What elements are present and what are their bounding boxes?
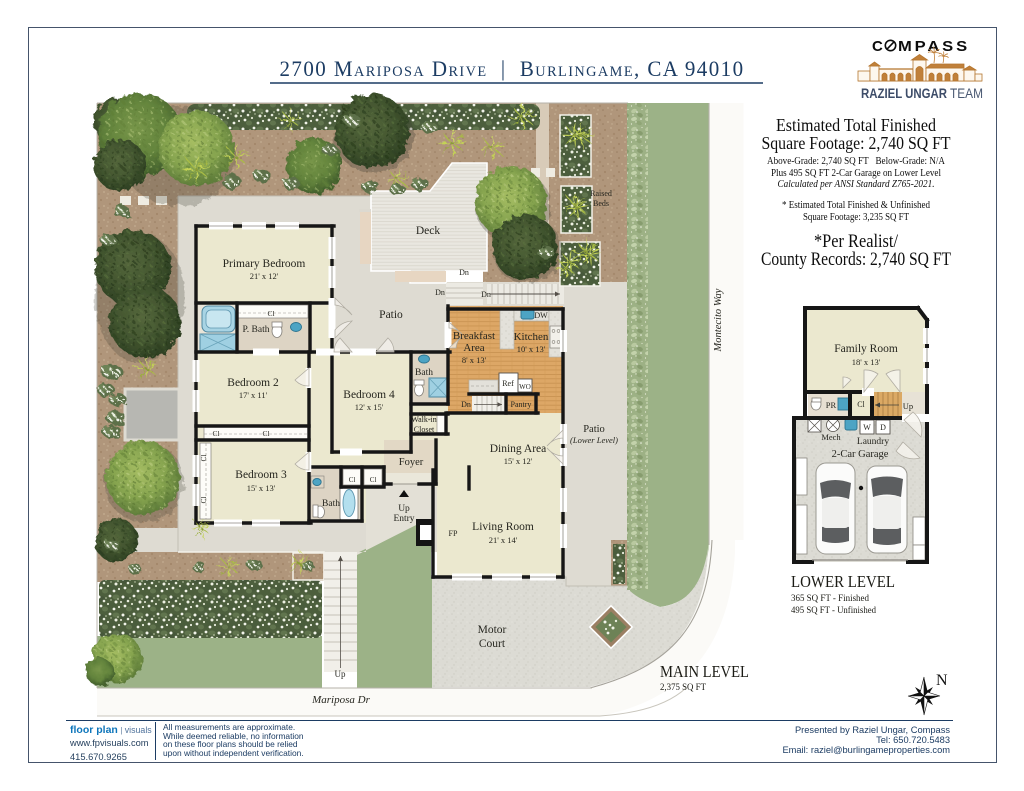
svg-text:Walk-in: Walk-in: [411, 415, 437, 424]
svg-text:Bath: Bath: [322, 499, 340, 509]
svg-text:DW: DW: [534, 311, 548, 320]
svg-text:12' x 15': 12' x 15': [355, 402, 384, 412]
svg-text:21' x 14': 21' x 14': [489, 535, 518, 545]
svg-text:Beds: Beds: [593, 199, 609, 208]
svg-text:2,375 SQ FT: 2,375 SQ FT: [660, 683, 706, 693]
svg-text:Living Room: Living Room: [472, 521, 534, 533]
svg-text:Cl: Cl: [262, 429, 269, 438]
svg-text:Cl: Cl: [267, 309, 274, 318]
svg-text:Dn: Dn: [459, 268, 469, 277]
svg-text:Cl: Cl: [370, 476, 377, 484]
svg-text:Dn: Dn: [435, 288, 445, 297]
svg-text:15' x 12': 15' x 12': [504, 456, 533, 466]
svg-text:Up: Up: [335, 669, 346, 679]
svg-text:Motor: Motor: [478, 624, 507, 636]
svg-text:Kitchen: Kitchen: [514, 331, 549, 343]
svg-text:15' x 13': 15' x 13': [247, 483, 276, 493]
svg-text:D: D: [880, 423, 886, 432]
svg-text:Cl: Cl: [200, 455, 208, 462]
svg-text:P. Bath: P. Bath: [243, 325, 270, 335]
svg-text:18' x 13': 18' x 13': [852, 357, 881, 367]
svg-text:WO: WO: [519, 383, 531, 391]
svg-text:10' x 13': 10' x 13': [517, 344, 546, 354]
svg-text:(Lower Level): (Lower Level): [570, 435, 618, 445]
svg-text:Cl: Cl: [349, 476, 356, 484]
svg-text:Family Room: Family Room: [834, 343, 898, 355]
svg-text:17' x 11': 17' x 11': [239, 390, 268, 400]
svg-text:Closet: Closet: [414, 425, 435, 434]
svg-text:Raised: Raised: [590, 189, 612, 198]
svg-text:Patio: Patio: [379, 309, 403, 321]
svg-text:Up: Up: [398, 504, 410, 514]
svg-text:Dining Area: Dining Area: [490, 443, 547, 455]
svg-text:Dn: Dn: [461, 400, 471, 409]
svg-text:2-Car Garage: 2-Car Garage: [832, 449, 889, 460]
svg-text:Deck: Deck: [416, 225, 441, 237]
svg-text:Patio: Patio: [583, 424, 605, 435]
svg-text:Entry: Entry: [393, 514, 414, 524]
svg-text:Cl: Cl: [212, 429, 219, 438]
svg-text:Up: Up: [903, 401, 913, 411]
svg-text:495 SQ FT - Unfinished: 495 SQ FT - Unfinished: [791, 605, 876, 616]
svg-text:Dn: Dn: [481, 290, 491, 299]
svg-text:Bedroom 4: Bedroom 4: [343, 389, 395, 401]
svg-text:W: W: [863, 423, 871, 432]
svg-text:21' x 12': 21' x 12': [250, 271, 279, 281]
svg-text:Cl: Cl: [200, 497, 208, 504]
svg-text:PR: PR: [826, 400, 837, 410]
svg-text:Breakfast: Breakfast: [453, 330, 495, 342]
svg-text:Mech: Mech: [821, 432, 841, 442]
svg-text:Laundry: Laundry: [857, 437, 889, 447]
svg-text:8' x 13': 8' x 13': [462, 355, 487, 365]
svg-text:Area: Area: [463, 342, 484, 354]
svg-text:Foyer: Foyer: [399, 457, 424, 468]
svg-text:N: N: [936, 672, 948, 689]
svg-text:Primary Bedroom: Primary Bedroom: [223, 258, 306, 270]
svg-text:Cl: Cl: [857, 400, 865, 409]
svg-text:Bedroom 2: Bedroom 2: [227, 377, 279, 389]
svg-text:FP: FP: [449, 529, 458, 538]
svg-text:Bedroom 3: Bedroom 3: [235, 469, 287, 481]
svg-text:LOWER LEVEL: LOWER LEVEL: [791, 572, 895, 591]
svg-text:Pantry: Pantry: [511, 400, 532, 409]
svg-text:Montecito Way: Montecito Way: [713, 288, 724, 352]
svg-text:Mariposa Dr: Mariposa Dr: [311, 694, 370, 706]
svg-text:Bath: Bath: [415, 368, 433, 378]
svg-text:365 SQ FT - Finished: 365 SQ FT - Finished: [791, 594, 869, 604]
svg-text:MAIN LEVEL: MAIN LEVEL: [660, 662, 749, 681]
svg-text:Ref: Ref: [502, 379, 514, 388]
svg-text:Court: Court: [479, 638, 506, 650]
